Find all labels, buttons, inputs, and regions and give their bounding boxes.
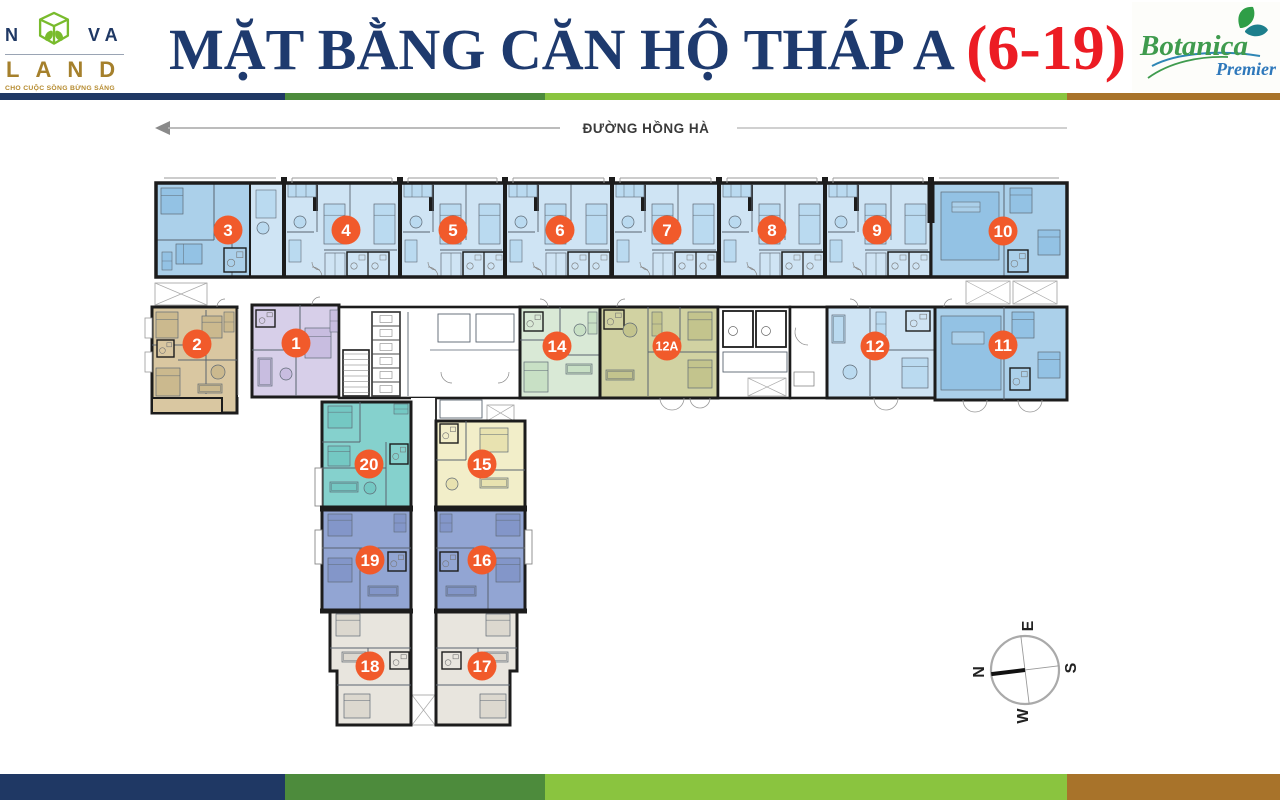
svg-text:14: 14: [548, 337, 567, 356]
svg-text:ĐƯỜNG HỒNG HÀ: ĐƯỜNG HỒNG HÀ: [583, 121, 710, 136]
svg-text:19: 19: [361, 551, 380, 570]
svg-text:6: 6: [555, 221, 564, 240]
svg-text:3: 3: [223, 221, 232, 240]
svg-text:E: E: [1020, 620, 1037, 631]
svg-text:18: 18: [361, 657, 380, 676]
svg-text:7: 7: [662, 221, 671, 240]
svg-text:15: 15: [473, 455, 492, 474]
svg-text:11: 11: [994, 336, 1012, 355]
svg-text:1: 1: [291, 334, 300, 353]
svg-text:10: 10: [994, 222, 1013, 241]
svg-text:N: N: [971, 666, 988, 678]
svg-text:9: 9: [872, 221, 881, 240]
svg-text:4: 4: [341, 221, 351, 240]
svg-text:S: S: [1063, 662, 1080, 673]
svg-text:20: 20: [360, 455, 379, 474]
svg-text:5: 5: [448, 221, 457, 240]
svg-text:12: 12: [866, 337, 885, 356]
svg-text:8: 8: [767, 221, 776, 240]
svg-text:2: 2: [192, 335, 201, 354]
svg-text:12A: 12A: [656, 339, 679, 353]
svg-text:W: W: [1015, 708, 1032, 724]
svg-text:16: 16: [473, 551, 492, 570]
svg-text:17: 17: [473, 657, 492, 676]
